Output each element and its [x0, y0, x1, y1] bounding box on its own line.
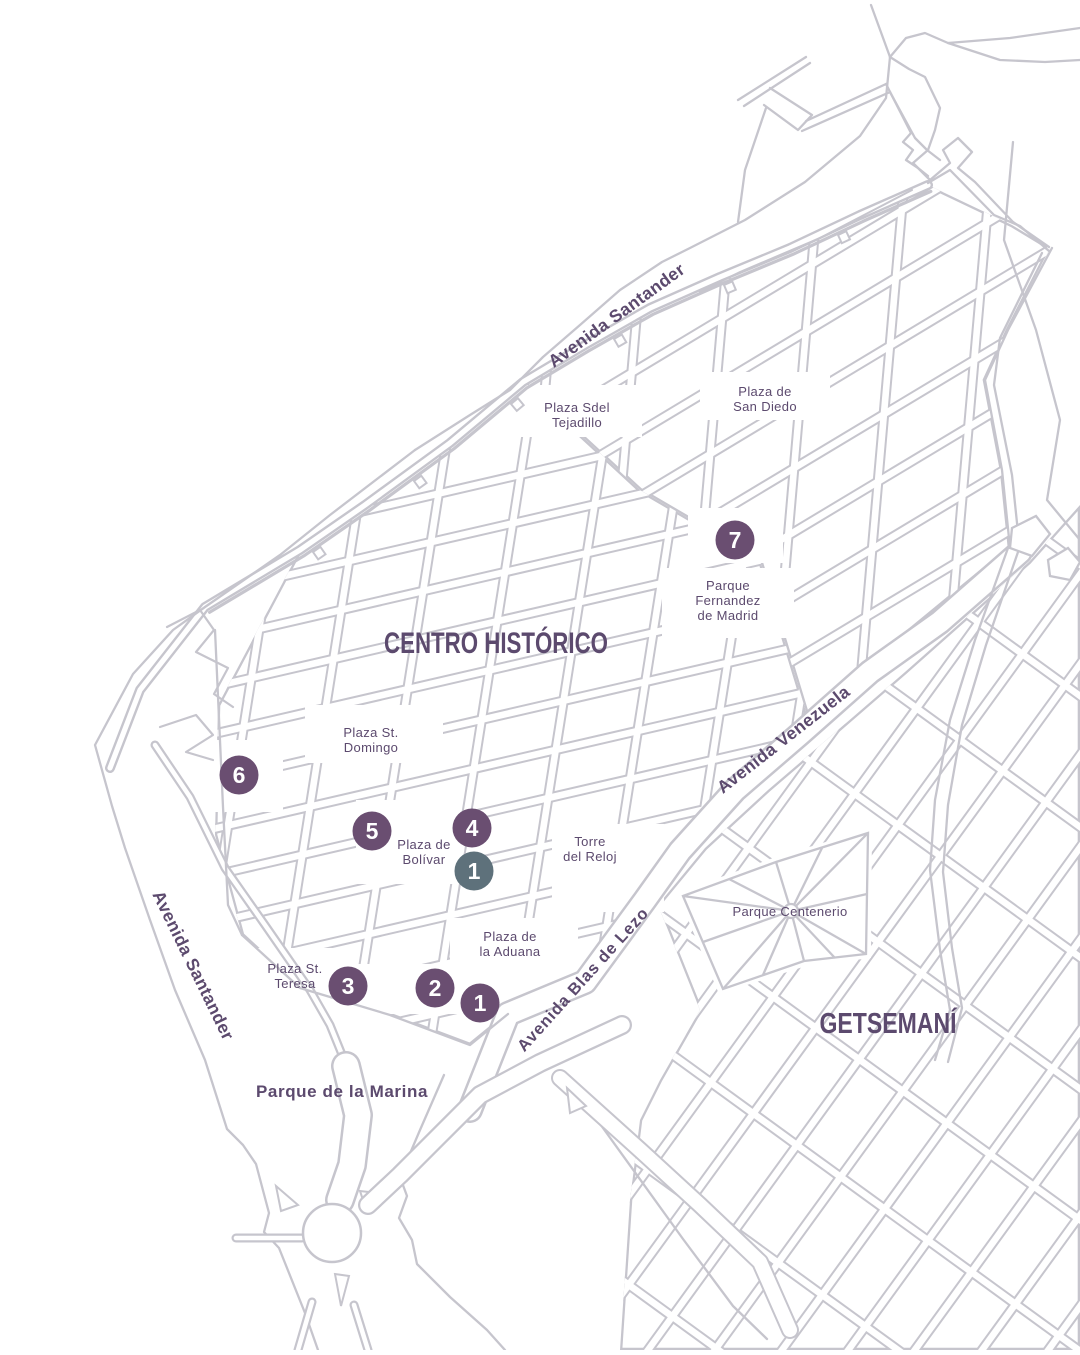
svg-text:Plaza St.Teresa: Plaza St.Teresa [267, 961, 322, 991]
svg-text:CENTRO HISTÓRICO: CENTRO HISTÓRICO [384, 626, 608, 660]
svg-text:Plaza deBolívar: Plaza deBolívar [397, 837, 450, 867]
svg-text:Plaza St.Domingo: Plaza St.Domingo [343, 725, 398, 755]
svg-text:4: 4 [466, 815, 479, 841]
svg-text:Plaza deSan Diedo: Plaza deSan Diedo [733, 384, 797, 414]
svg-text:Plaza dela Aduana: Plaza dela Aduana [480, 929, 541, 959]
svg-text:Parque de la Marina: Parque de la Marina [256, 1082, 428, 1101]
svg-text:7: 7 [729, 527, 742, 553]
svg-text:GETSEMANÍ: GETSEMANÍ [820, 1006, 958, 1040]
svg-text:Parque Centenerio: Parque Centenerio [732, 904, 847, 919]
svg-text:5: 5 [366, 818, 379, 844]
svg-text:2: 2 [429, 975, 442, 1001]
svg-text:6: 6 [233, 762, 246, 788]
svg-text:Plaza SdelTejadillo: Plaza SdelTejadillo [544, 400, 610, 430]
svg-text:1: 1 [474, 990, 487, 1016]
svg-text:3: 3 [342, 973, 355, 999]
svg-text:1: 1 [468, 858, 481, 884]
